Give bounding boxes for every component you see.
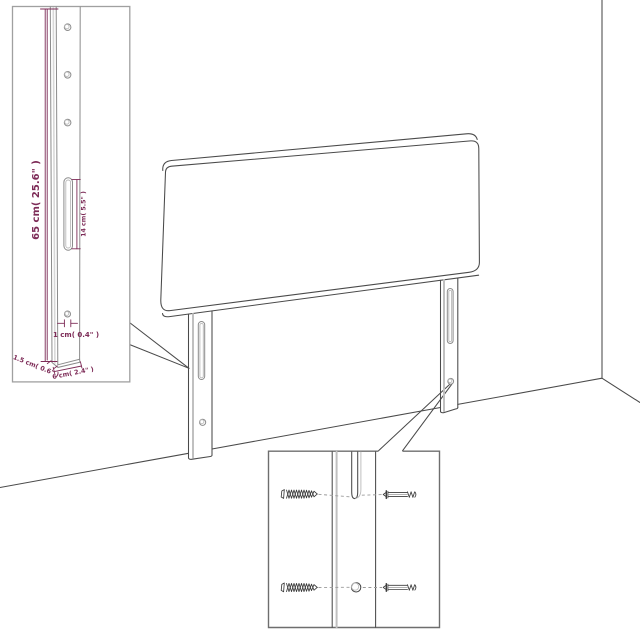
dimension-label-hole: 1 cm( 0.4" ) bbox=[53, 331, 99, 339]
left-leg bbox=[189, 311, 213, 459]
dimension-label-height: 65 cm( 25.6" ) bbox=[31, 160, 42, 240]
callout-lines-leg-inset bbox=[130, 323, 190, 369]
mounting-detail-inset bbox=[269, 451, 440, 627]
right-leg bbox=[441, 278, 458, 413]
right-leg-slot bbox=[447, 289, 453, 344]
floor-line-right bbox=[602, 378, 640, 402]
headboard-panel bbox=[161, 141, 480, 311]
dimension-label-slot: 14 cm( 5.5" ) bbox=[81, 191, 88, 237]
leg-detail-inset: 65 cm( 25.6" ) 14 cm( 5.5" ) 1 cm( 0.4" … bbox=[12, 7, 130, 382]
headboard bbox=[161, 134, 480, 317]
diagram-canvas: 65 cm( 25.6" ) 14 cm( 5.5" ) 1 cm( 0.4" … bbox=[0, 0, 640, 640]
headboard-assembly-diagram: 65 cm( 25.6" ) 14 cm( 5.5" ) 1 cm( 0.4" … bbox=[0, 0, 640, 640]
